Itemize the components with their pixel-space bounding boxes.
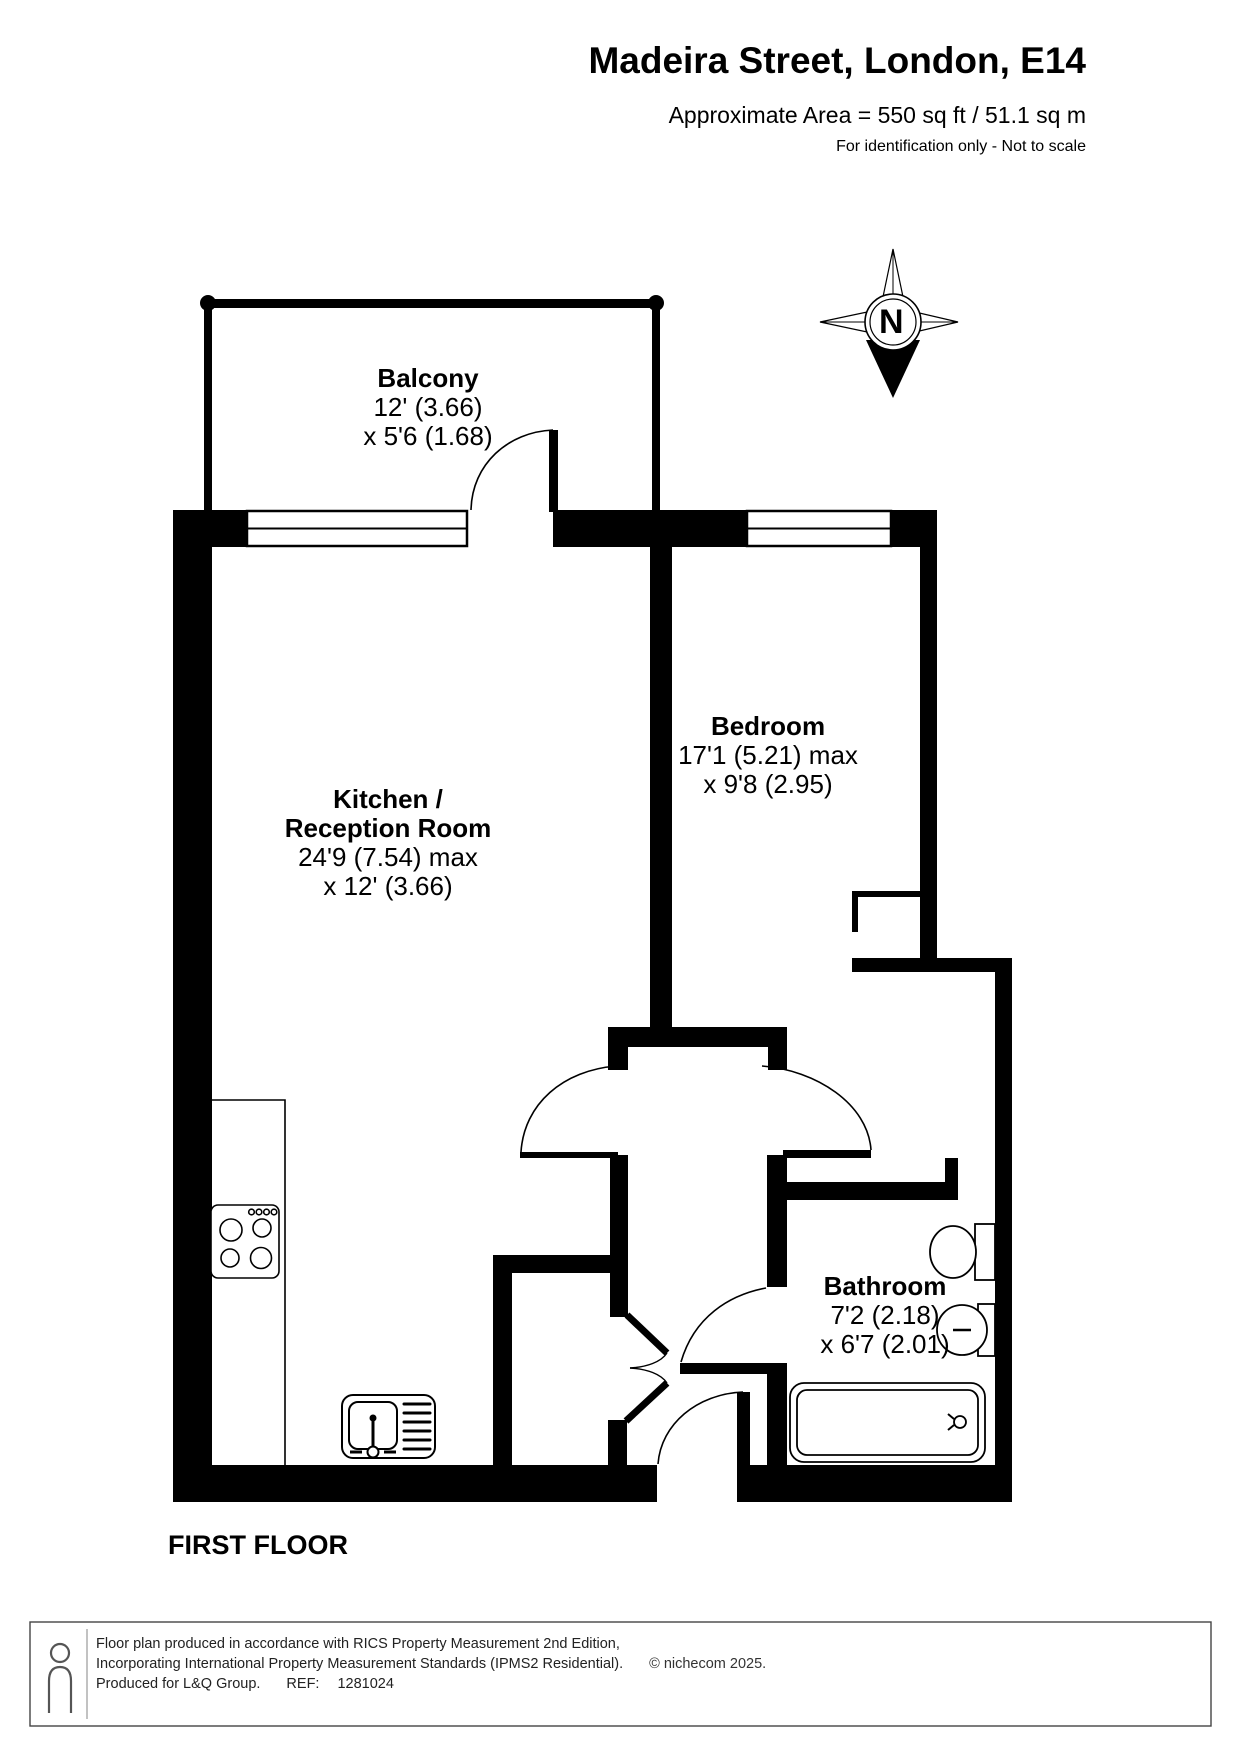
balcony-door-leaf [549, 430, 558, 512]
window-kitchen [247, 511, 467, 546]
bathroom-dim2: x 6'7 (2.01) [820, 1330, 949, 1359]
bedroom-name: Bedroom [678, 712, 858, 741]
footer-credits: Floor plan produced in accordance with R… [96, 1634, 766, 1694]
bathroom-door-arc [681, 1288, 766, 1362]
kitchen-name-line1: Kitchen / [285, 785, 492, 814]
bifold-door-arc-lower [630, 1368, 667, 1383]
bathtub-icon [790, 1383, 985, 1462]
bathroom-name: Bathroom [820, 1272, 949, 1301]
balcony-dim2: x 5'6 (1.68) [363, 422, 492, 451]
footer-ref-label: REF: [286, 1676, 319, 1692]
balcony-dim1: 12' (3.66) [363, 393, 492, 422]
footer-line1: Floor plan produced in accordance with R… [96, 1634, 766, 1654]
kitchen-counter [212, 1100, 285, 1465]
kitchen-dim1: 24'9 (7.54) max [285, 843, 492, 872]
footer-ref-value: 1281024 [337, 1676, 393, 1692]
page-title: Madeira Street, London, E14 [588, 40, 1086, 82]
floorplan-page: Madeira Street, London, E14 Approximate … [0, 0, 1241, 1755]
room-label-bedroom: Bedroom 17'1 (5.21) max x 9'8 (2.95) [678, 712, 858, 799]
compass-north-label: N [879, 303, 904, 342]
bedroom-dim1: 17'1 (5.21) max [678, 741, 858, 770]
entrance-door-leaf [737, 1392, 750, 1467]
balcony-name: Balcony [363, 364, 492, 393]
room-label-bathroom: Bathroom 7'2 (2.18) x 6'7 (2.01) [820, 1272, 949, 1359]
hob-icon [211, 1205, 279, 1278]
person-icon [49, 1644, 71, 1713]
kitchen-name-line2: Reception Room [285, 814, 492, 843]
floorplan-drawing [0, 0, 1241, 1755]
double-door-left-arc [521, 1066, 617, 1152]
double-door-right-arc [762, 1066, 871, 1150]
scale-disclaimer: For identification only - Not to scale [836, 138, 1086, 156]
room-label-balcony: Balcony 12' (3.66) x 5'6 (1.68) [363, 364, 492, 451]
bathroom-dim1: 7'2 (2.18) [820, 1301, 949, 1330]
copyright-text: © nichecom 2025. [649, 1656, 766, 1672]
kitchen-dim2: x 12' (3.66) [285, 872, 492, 901]
footer-line2: Incorporating International Property Mea… [96, 1656, 623, 1672]
bifold-door-arc-upper [630, 1353, 667, 1368]
sink-icon [342, 1395, 435, 1458]
bedroom-dim2: x 9'8 (2.95) [678, 770, 858, 799]
entrance-door-arc [658, 1392, 743, 1464]
approximate-area: Approximate Area = 550 sq ft / 51.1 sq m [669, 102, 1086, 129]
room-label-kitchen: Kitchen / Reception Room 24'9 (7.54) max… [285, 785, 492, 901]
window-bedroom [747, 511, 891, 546]
floor-name: FIRST FLOOR [168, 1530, 348, 1561]
bifold-door-leaf-lower [626, 1383, 667, 1421]
bifold-door-leaf-upper [627, 1315, 667, 1353]
footer-produced-for: Produced for L&Q Group. [96, 1676, 260, 1692]
